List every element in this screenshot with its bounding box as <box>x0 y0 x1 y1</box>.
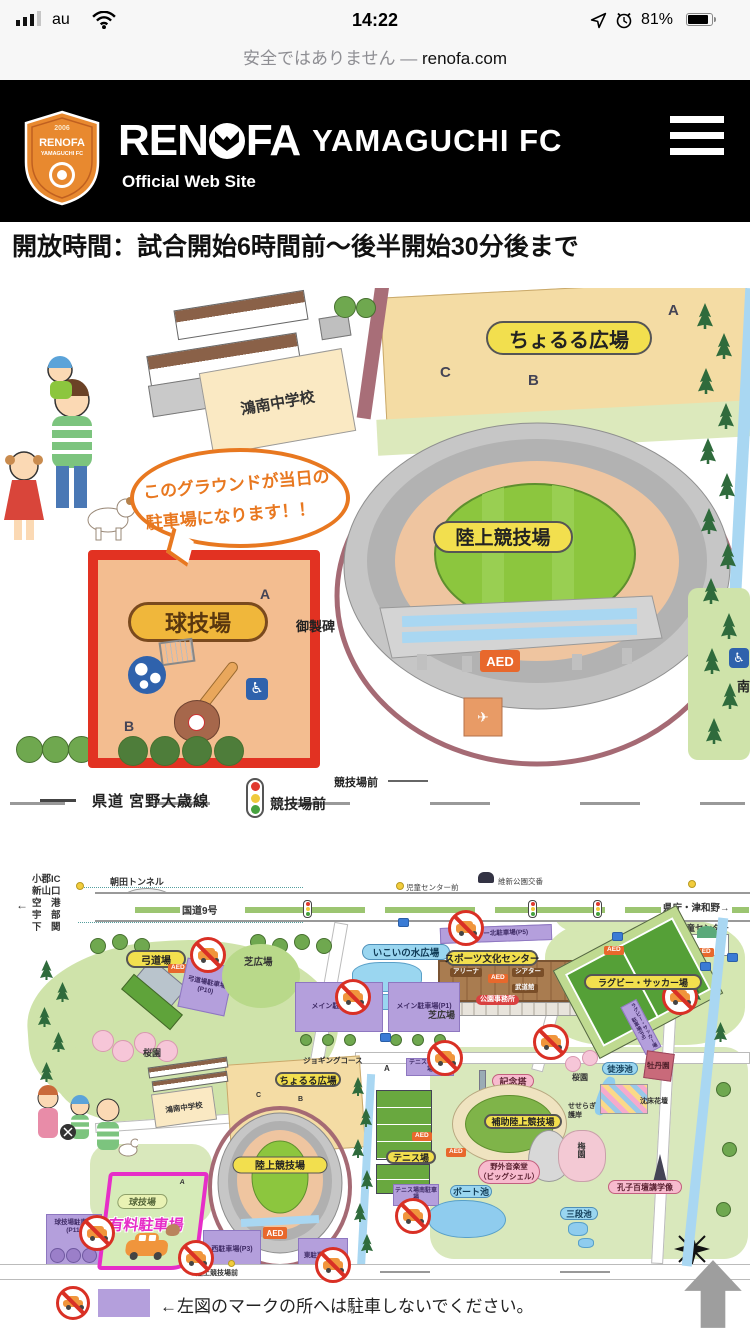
svg-text:2006: 2006 <box>54 125 70 132</box>
aed-badge: AED <box>412 1132 432 1141</box>
zone-letter: A <box>260 586 270 602</box>
sports-center-label: スポーツ文化センター <box>446 950 538 966</box>
wading-pond-label: 徒渉池 <box>602 1062 638 1075</box>
athletics-stadium: 陸上競技場 AED ✈ <box>322 416 750 768</box>
tree-icon <box>90 938 106 954</box>
road-dash <box>580 802 640 805</box>
car-icon <box>125 1240 169 1256</box>
time-label: 14:22 <box>340 10 410 31</box>
wheelchair-icon: ♿ <box>729 648 749 668</box>
toilet-icon <box>612 932 623 941</box>
battery-tip-icon <box>714 17 716 22</box>
tree-icon <box>344 1034 356 1046</box>
zone-letter: B <box>528 372 539 389</box>
signal-icon <box>37 11 41 26</box>
fox-head-icon <box>209 123 245 159</box>
url-bar[interactable]: 安全ではありません — renofa.com <box>0 42 750 80</box>
svg-text:AED: AED <box>486 654 513 669</box>
choruru-plaza-label: ちょるる広場 <box>275 1072 341 1087</box>
road-dash <box>560 1271 610 1273</box>
sandan-pond <box>578 1238 594 1248</box>
tree-icon <box>294 934 310 950</box>
sakura-garden-label: 桜園 <box>143 1046 161 1059</box>
theater-label: シアター <box>512 968 544 977</box>
cherry-tree-icon <box>565 1056 581 1072</box>
club-crest-icon: 2006 RENOFA YAMAGUCHI FC <box>22 110 102 206</box>
tree-icon <box>182 736 212 766</box>
signal-icon <box>30 14 34 26</box>
svg-text:陸上競技場: 陸上競技場 <box>255 1159 305 1172</box>
route9-label: 国道9号 <box>180 902 220 917</box>
seseragi-label: せせらぎ護岸 <box>568 1102 596 1120</box>
tree-icon <box>316 938 332 954</box>
no-parking-icon <box>178 1240 214 1276</box>
music-hall-label: 野外音楽堂（ビッグシェル） <box>478 1160 540 1184</box>
tunnel-label: 朝田トンネル <box>110 875 164 888</box>
tree-icon <box>40 960 53 980</box>
lawn-patch <box>688 588 750 760</box>
tree-icon <box>716 1082 731 1097</box>
arena-label: アリーナ <box>450 968 482 977</box>
tree-icon <box>300 1034 312 1046</box>
road-dash <box>430 802 490 805</box>
soccer-ball-icon <box>128 656 166 694</box>
traffic-light-icon <box>528 900 537 918</box>
svg-text:RENOFA: RENOFA <box>39 137 85 149</box>
stadium-parking-map: A C B ちょるる広場 鴻南中学校 <box>0 288 750 840</box>
traffic-light-icon <box>246 778 264 818</box>
zone-letter: B <box>124 718 134 734</box>
alarm-icon <box>615 11 633 34</box>
legend-text: ←左図のマークの所へは駐車しないでください。 <box>160 1292 534 1317</box>
ball-field-label: 球技場 <box>116 1194 168 1209</box>
signal-icon <box>23 17 27 26</box>
no-parking-icon <box>79 1215 115 1251</box>
tree-icon <box>50 1248 65 1263</box>
family-illustration <box>28 1080 138 1172</box>
bus-stop-icon <box>688 880 696 888</box>
traffic-light-icon <box>303 900 312 918</box>
no-parking-icon <box>56 1286 90 1320</box>
bus-stop-icon <box>396 882 404 890</box>
url-domain-label: renofa.com <box>422 49 507 68</box>
no-parking-icon <box>190 937 226 973</box>
boat-pond <box>428 1200 506 1238</box>
safari-mobile-screen: au 14:22 81% 安全ではありません — renofa.com 2006 <box>0 0 750 1334</box>
signal-name-label: 競技場前 <box>270 794 326 814</box>
club-logo[interactable]: 2006 RENOFA YAMAGUCHI FC <box>22 110 102 211</box>
no-parking-icon <box>427 1040 463 1076</box>
svg-text:AED: AED <box>267 1229 284 1238</box>
svg-text:✈: ✈ <box>477 709 489 725</box>
jogging-course-label: ジョギングコース <box>303 1055 363 1066</box>
zone-letter: A <box>384 1064 390 1073</box>
shiba-plaza-label: 芝広場 <box>428 1008 455 1021</box>
south-gate-label: 南 <box>737 676 750 695</box>
budokan-label: 武道館 <box>512 984 538 993</box>
tree-icon <box>390 1034 402 1046</box>
tree-icon <box>118 736 148 766</box>
ball-field-highlight: 球技場 A B ♿ <box>88 550 320 768</box>
carrier-label: au <box>52 11 70 29</box>
destinations-block: 小郡IC 新山口 空 港 宇 部 下 関 <box>32 874 61 934</box>
tree-icon <box>412 1034 424 1046</box>
ume-garden-label: 梅園 <box>576 1142 587 1158</box>
bus-stop-name: 児童センター前 <box>406 882 459 893</box>
url-security-label: 安全ではありません <box>243 49 396 68</box>
tree-icon <box>214 736 244 766</box>
site-header: 2006 RENOFA YAMAGUCHI FC REN FA YAMAGUCH… <box>0 80 750 222</box>
confucius-statue-label: 孔子百壇講学像 <box>608 1180 682 1194</box>
up-arrow-icon <box>680 1256 746 1332</box>
botan-garden-label: 牡丹園 <box>647 1060 670 1071</box>
toilet-icon <box>398 918 409 927</box>
tree-icon <box>150 736 180 766</box>
cherry-tree-icon <box>92 1030 114 1052</box>
bus-stop-icon <box>76 882 84 890</box>
tree-icon <box>66 1248 81 1263</box>
tree-icon <box>42 736 69 763</box>
url-separator: — <box>400 49 417 68</box>
zone-letter: B <box>298 1096 303 1103</box>
ikoi-water-plaza-label: いこいの水広場 <box>362 944 450 960</box>
scroll-to-top-button[interactable] <box>680 1256 746 1332</box>
no-parking-icon <box>395 1198 431 1234</box>
page-title: 開放時間：試合開始6時間前〜後半開始30分後まで <box>12 227 579 263</box>
cherry-tree-icon <box>112 1040 134 1062</box>
direction-arrow: ← <box>16 898 28 912</box>
aed-badge: AED <box>446 1148 466 1157</box>
tree-icon <box>322 1034 334 1046</box>
toilet-icon <box>380 1033 391 1042</box>
family-illustration <box>0 348 140 563</box>
bus-stop-label: 競技場前 <box>334 774 378 790</box>
tree-icon <box>356 298 376 318</box>
park-office-label: 公園事務所 <box>476 995 519 1005</box>
sunken-garden-label: 沈床花壇 <box>640 1096 668 1106</box>
koban-icon <box>478 872 494 883</box>
rugby-field-label: ラグビー・サッカー場 <box>584 974 702 990</box>
no-parking-icon <box>335 979 371 1015</box>
aux-athletics-label: 補助陸上競技場 <box>484 1114 562 1129</box>
battery-percent-label: 81% <box>641 11 673 29</box>
koban-label: 維新公園交番 <box>498 876 543 887</box>
wifi-icon <box>92 11 116 34</box>
zone-letter: C <box>256 1092 261 1099</box>
destination: 空 港 <box>32 898 61 910</box>
no-parking-icon <box>315 1247 351 1283</box>
road-name-label: 県道 宮野大歳線 <box>92 790 209 811</box>
boat-pond-label: ボート池 <box>450 1185 492 1198</box>
monument-label: 御製碑 <box>296 616 335 635</box>
main-parking-p1-area: メイン駐車場(P1) <box>388 982 460 1032</box>
toilet-icon <box>727 953 738 962</box>
choruru-plaza-label: ちょるる広場 <box>486 321 652 355</box>
tree-icon <box>334 296 356 318</box>
road-dash <box>380 1271 430 1273</box>
no-parking-icon <box>533 1024 569 1060</box>
road-dash <box>10 802 65 805</box>
status-bar: au 14:22 81% <box>0 0 750 42</box>
goal-icon <box>158 638 195 666</box>
tree-icon <box>112 934 128 950</box>
tree-icon <box>716 1202 731 1217</box>
svg-text:YAMAGUCHI FC: YAMAGUCHI FC <box>41 151 83 157</box>
aed-badge: AED <box>488 974 508 983</box>
aed-badge: AED <box>604 946 624 955</box>
zone-letter: C <box>440 364 451 381</box>
sakura-garden-label: 桜園 <box>572 1072 588 1083</box>
wordmark[interactable]: REN FA YAMAGUCHI FC <box>118 116 562 166</box>
destination: 宇 部 <box>32 910 61 922</box>
wordmark-fa: FA <box>246 116 300 166</box>
cherry-tree-icon <box>582 1050 598 1066</box>
site-tagline: Official Web Site <box>122 172 256 192</box>
tree-icon <box>722 1142 737 1157</box>
no-parking-icon <box>448 910 484 946</box>
wheelchair-icon: ♿ <box>246 678 268 700</box>
konan-school-label: 鴻南中学校 <box>165 1099 204 1115</box>
destination: 新山口 <box>32 886 61 898</box>
ball-field-label: 球技場 <box>128 602 268 642</box>
battery-icon <box>686 13 713 26</box>
hamburger-menu-button[interactable] <box>670 116 724 156</box>
shiba-hill-label: 芝広場 <box>244 954 273 968</box>
wordmark-ren: REN <box>118 116 208 166</box>
bus-stop-icon <box>228 1260 235 1267</box>
location-icon <box>590 12 607 34</box>
signal-icon <box>16 20 20 26</box>
traffic-light-icon <box>593 900 602 918</box>
konan-school-label: 鴻南中学校 <box>239 385 317 419</box>
road-dash <box>388 780 428 782</box>
parking-color-swatch <box>98 1289 150 1317</box>
svg-text:陸上競技場: 陸上競技場 <box>455 526 550 549</box>
dotted-leader <box>78 922 303 923</box>
jido-center-dome <box>697 926 717 938</box>
road-dash <box>40 799 76 802</box>
sandan-pond-label: 三段池 <box>560 1207 598 1220</box>
zone-letter: A <box>179 1179 185 1186</box>
destination: 下 関 <box>32 922 61 934</box>
sandan-pond <box>568 1222 588 1236</box>
tennis-courts-label: テニス場 <box>386 1150 436 1164</box>
speech-bubble: このグラウンドが当日の 駐車場になります！！ <box>130 448 352 570</box>
park-overview-map: ← 小郡IC 新山口 空 港 宇 部 下 関 朝田トンネル 国道9号 県庁・津和… <box>0 862 750 1284</box>
zone-letter: A <box>668 302 679 319</box>
median-strip <box>495 907 605 913</box>
tree-icon <box>16 736 43 763</box>
wordmark-yamaguchi: YAMAGUCHI FC <box>312 123 562 159</box>
road-dash <box>700 802 745 805</box>
destination: 小郡IC <box>32 874 61 886</box>
toilet-icon <box>700 962 711 971</box>
